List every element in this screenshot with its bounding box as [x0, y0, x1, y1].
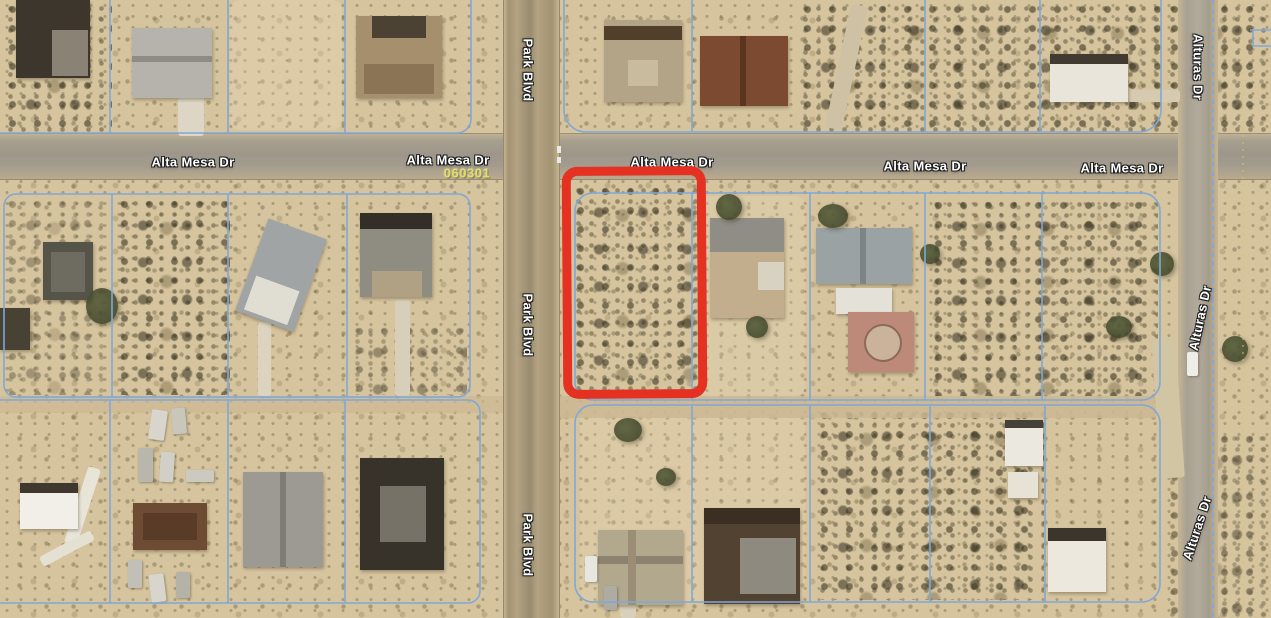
highlighted-parcel-outline [0, 0, 1271, 618]
map-canvas[interactable]: Alta Mesa Dr Alta Mesa Dr Alta Mesa Dr A… [0, 0, 1271, 618]
